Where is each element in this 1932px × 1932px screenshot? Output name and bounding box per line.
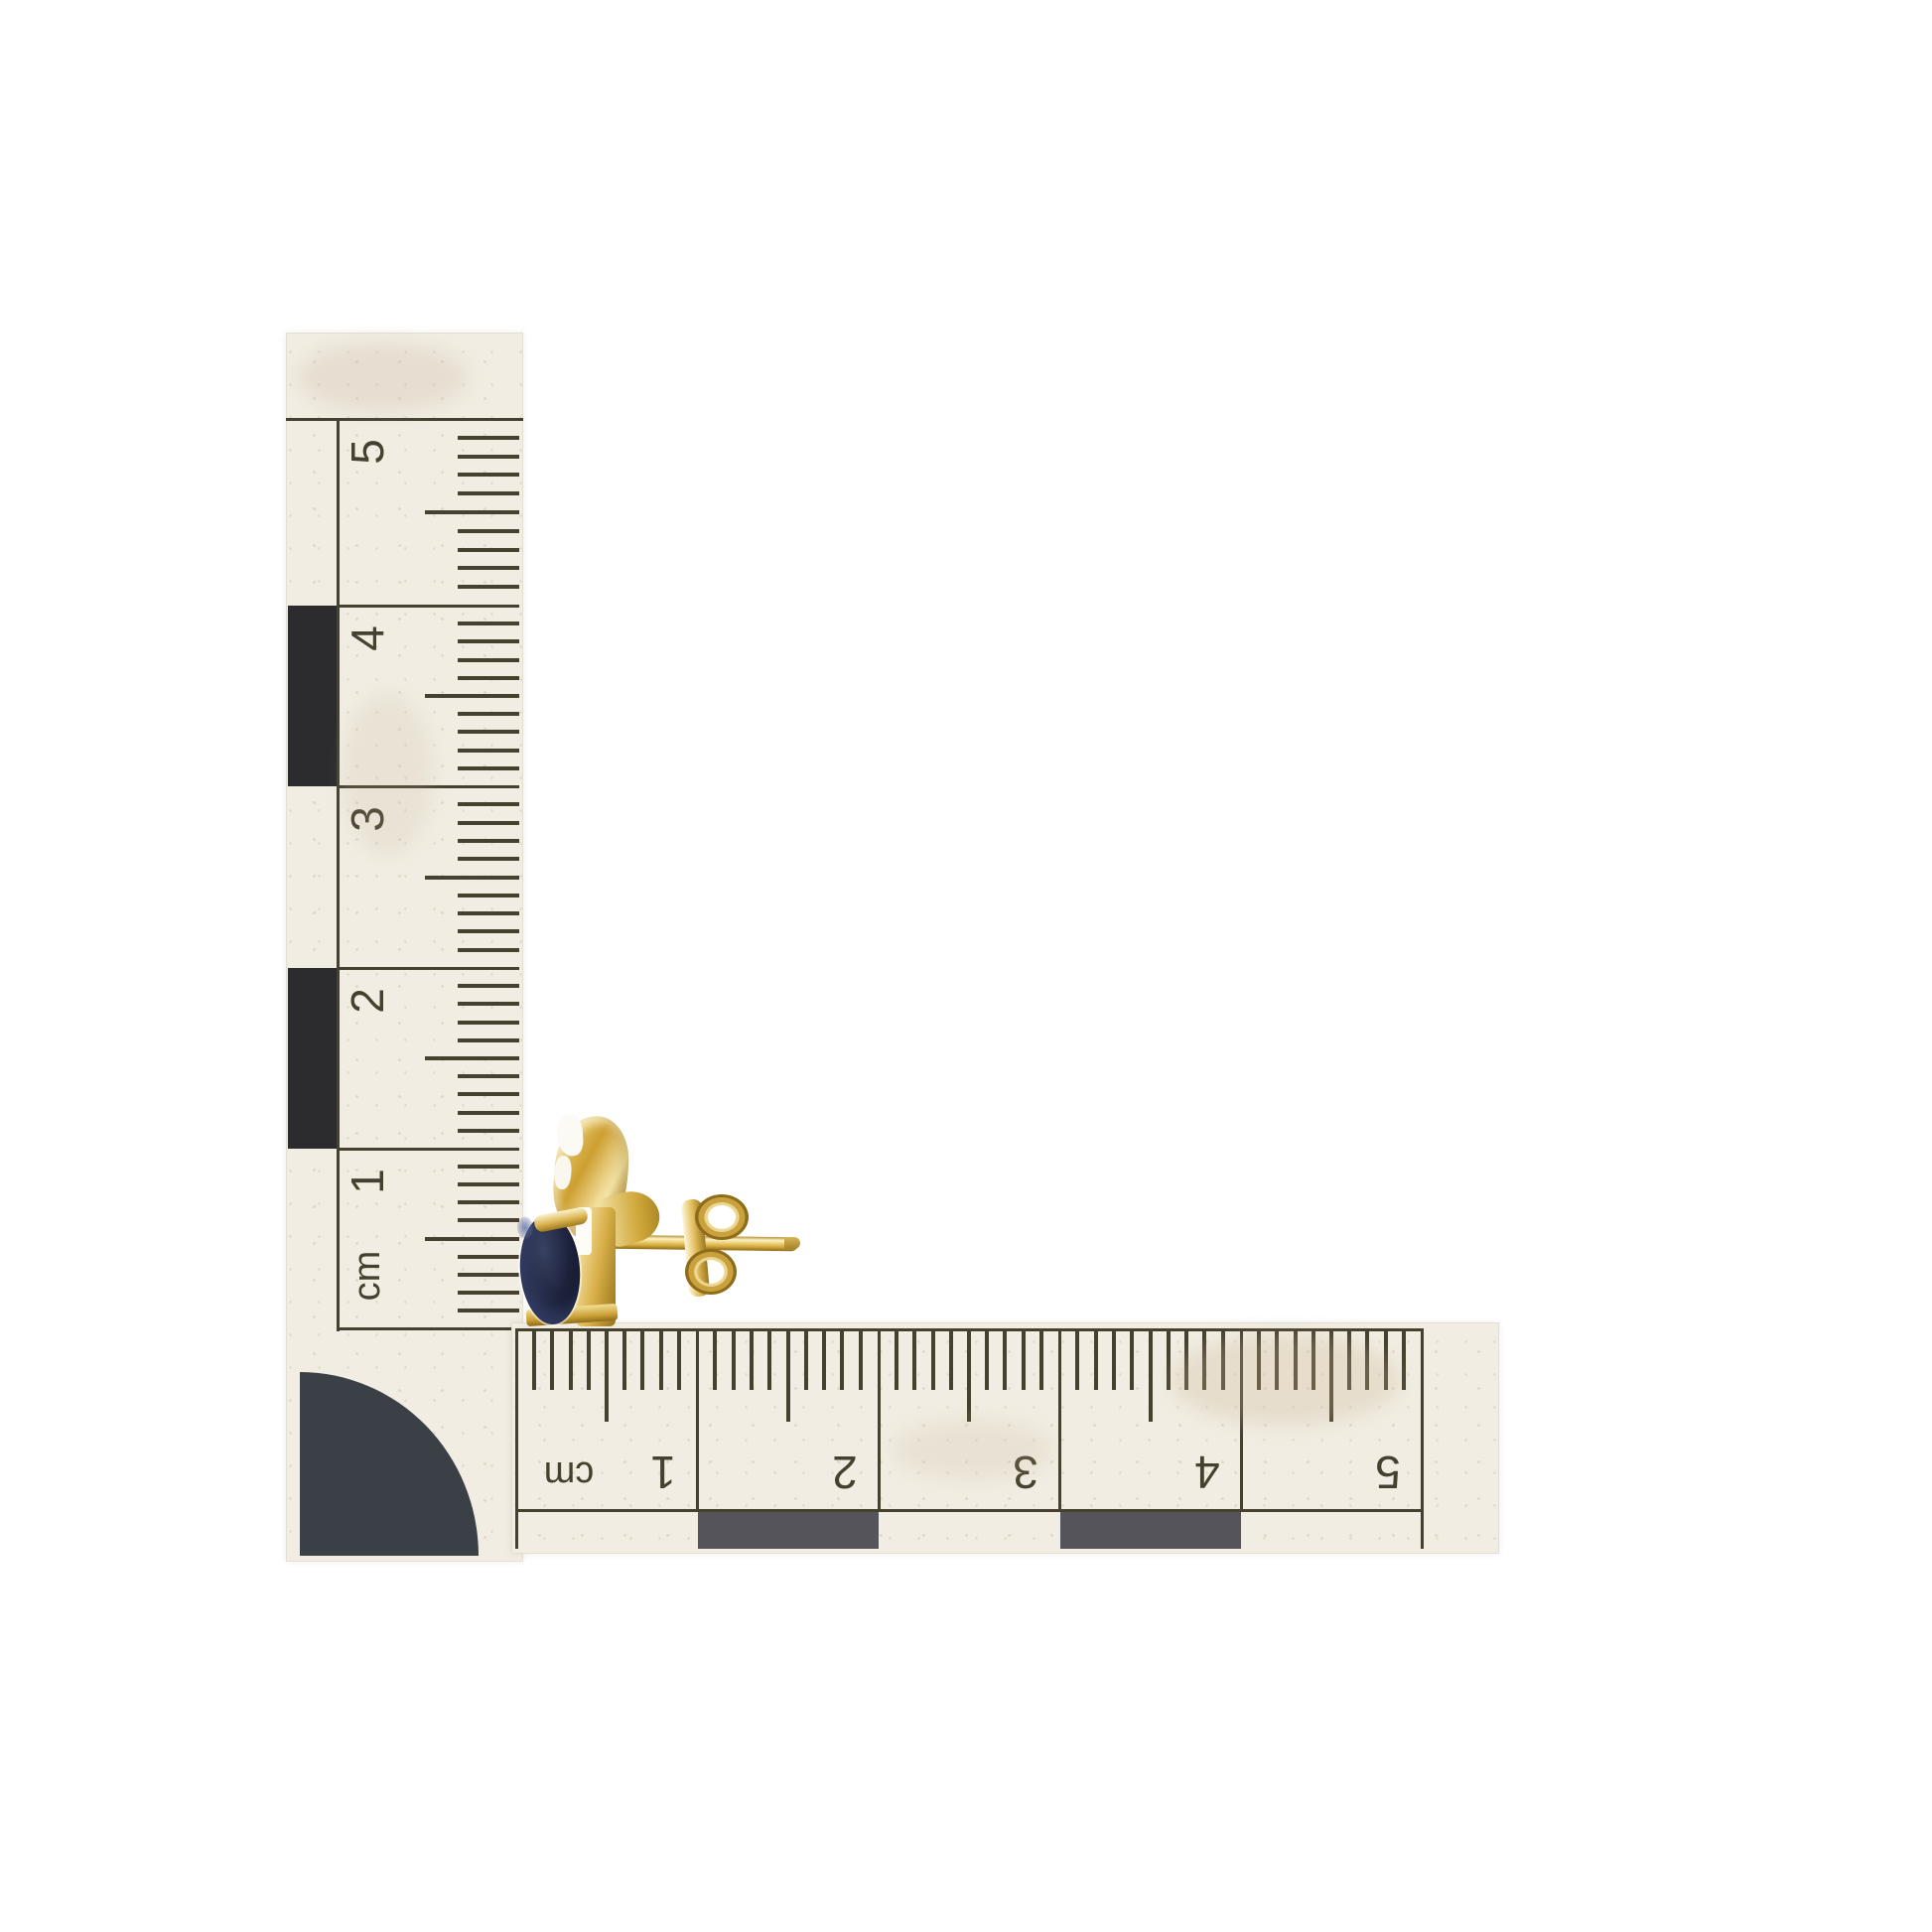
horizontal-ruler-label-2: 2 (813, 1448, 877, 1497)
ruler-tick (458, 712, 519, 716)
ruler-tick (458, 548, 519, 552)
ruler-tick (458, 1200, 519, 1204)
ruler-tick (458, 948, 519, 952)
ruler-cm-line (338, 605, 519, 608)
ruler-tick (458, 1129, 519, 1133)
ruler-cm-line (878, 1328, 881, 1509)
ruler-cm-line (696, 1328, 699, 1509)
ruler-tick (458, 529, 519, 533)
ruler-tick (458, 1002, 519, 1006)
checker-black-segment (288, 968, 337, 1149)
horizontal-ruler-label-1: 1 (631, 1448, 695, 1497)
ruler-tick (931, 1330, 935, 1390)
ruler-tick (458, 658, 519, 662)
ruler-tick (425, 1237, 519, 1241)
ruler-tick (458, 1291, 519, 1295)
ruler-tick (458, 639, 519, 643)
paper-smudge (298, 343, 467, 412)
ruler-tick (458, 730, 519, 734)
ruler-tick (458, 621, 519, 625)
earring (514, 1110, 812, 1348)
ruler-tick (458, 1111, 519, 1115)
vertical-ruler-label-5: 5 (336, 420, 399, 483)
ruler-tick (458, 455, 519, 459)
ruler-tick (425, 1056, 519, 1060)
checker-black-segment (288, 606, 337, 786)
vertical-ruler-label-4: 4 (336, 607, 399, 670)
ruler-tick (458, 1074, 519, 1078)
gemstone-glint (516, 1216, 533, 1239)
vertical-ruler-unit-label: cm (330, 1244, 405, 1308)
ruler-cm-line (515, 1328, 518, 1549)
ruler-tick (822, 1330, 826, 1390)
ruler-tick (425, 876, 519, 880)
ruler-tick (1022, 1330, 1026, 1390)
ruler-tick (458, 1309, 519, 1312)
horizontal-ruler-label-5: 5 (1356, 1448, 1420, 1497)
ruler-tick (458, 436, 519, 440)
ruler-tick (1402, 1330, 1406, 1390)
ruler-cm-line (1421, 1328, 1424, 1549)
ruler-tick (840, 1330, 844, 1390)
butterfly-back-upper-loop (695, 1194, 749, 1240)
ruler-tick (458, 1038, 519, 1042)
ruler-tick (967, 1330, 971, 1422)
ornament-openwork-hole (553, 1155, 572, 1189)
ruler-tick (425, 510, 519, 514)
ruler-top-line (286, 418, 523, 421)
ruler-tick (949, 1330, 953, 1390)
ruler-tick (985, 1330, 989, 1390)
ruler-tick (458, 1255, 519, 1259)
vertical-ruler-label-1: 1 (336, 1150, 399, 1213)
ruler-tick (458, 1218, 519, 1222)
ruler-tick (458, 911, 519, 915)
ruler-tick (458, 802, 519, 806)
ruler-tick (1167, 1330, 1171, 1390)
ruler-tick (458, 676, 519, 680)
ruler-tick (458, 1182, 519, 1186)
ruler-tick (912, 1330, 916, 1390)
ruler-cm-line (338, 1327, 519, 1330)
butterfly-back-lower-loop (685, 1249, 737, 1295)
ruler-tick (458, 821, 519, 825)
ruler-tick (1130, 1330, 1134, 1390)
ruler-tick (895, 1330, 898, 1390)
vertical-ruler-label-2: 2 (336, 969, 399, 1033)
ruler-tick (458, 1021, 519, 1025)
paper-smudge (894, 1420, 1052, 1479)
paper-smudge (343, 695, 432, 854)
ruler-tick (458, 749, 519, 753)
ruler-tick (458, 585, 519, 589)
ruler-tick (425, 694, 519, 698)
ruler-tick (458, 473, 519, 477)
ruler-bottom-line (516, 1509, 1422, 1512)
ruler-tick (1094, 1330, 1098, 1390)
ruler-tick (859, 1330, 863, 1390)
ruler-tick (1112, 1330, 1116, 1390)
checker-gray-segment (1060, 1512, 1241, 1549)
ruler-cm-line (1058, 1328, 1061, 1509)
ruler-tick (458, 984, 519, 988)
horizontal-ruler-label-4: 4 (1175, 1448, 1239, 1497)
earring-post-tip (784, 1237, 800, 1249)
paper-smudge (1172, 1335, 1400, 1425)
ruler-tick (458, 1092, 519, 1096)
ruler-tick (458, 566, 519, 570)
photo-stage: 5 4 3 2 1 cm cm 1 2 3 4 5 (0, 0, 1932, 1932)
ruler-cm-line (338, 967, 519, 970)
ruler-tick (458, 857, 519, 861)
ruler-cm-line (338, 1148, 519, 1151)
ruler-tick (458, 839, 519, 843)
ruler-tick (458, 894, 519, 897)
ruler-tick (1039, 1330, 1043, 1390)
checker-gray-segment (698, 1512, 879, 1549)
ruler-tick (458, 766, 519, 770)
horizontal-ruler-unit-label: cm (533, 1449, 605, 1499)
ruler-tick (458, 1165, 519, 1169)
ruler-tick (458, 491, 519, 495)
ruler-tick (1149, 1330, 1153, 1422)
ruler-tick (1003, 1330, 1007, 1390)
ruler-tick (1075, 1330, 1079, 1390)
ruler-tick (458, 1273, 519, 1277)
ornament-openwork-hole (556, 1114, 585, 1158)
ruler-tick (458, 929, 519, 933)
